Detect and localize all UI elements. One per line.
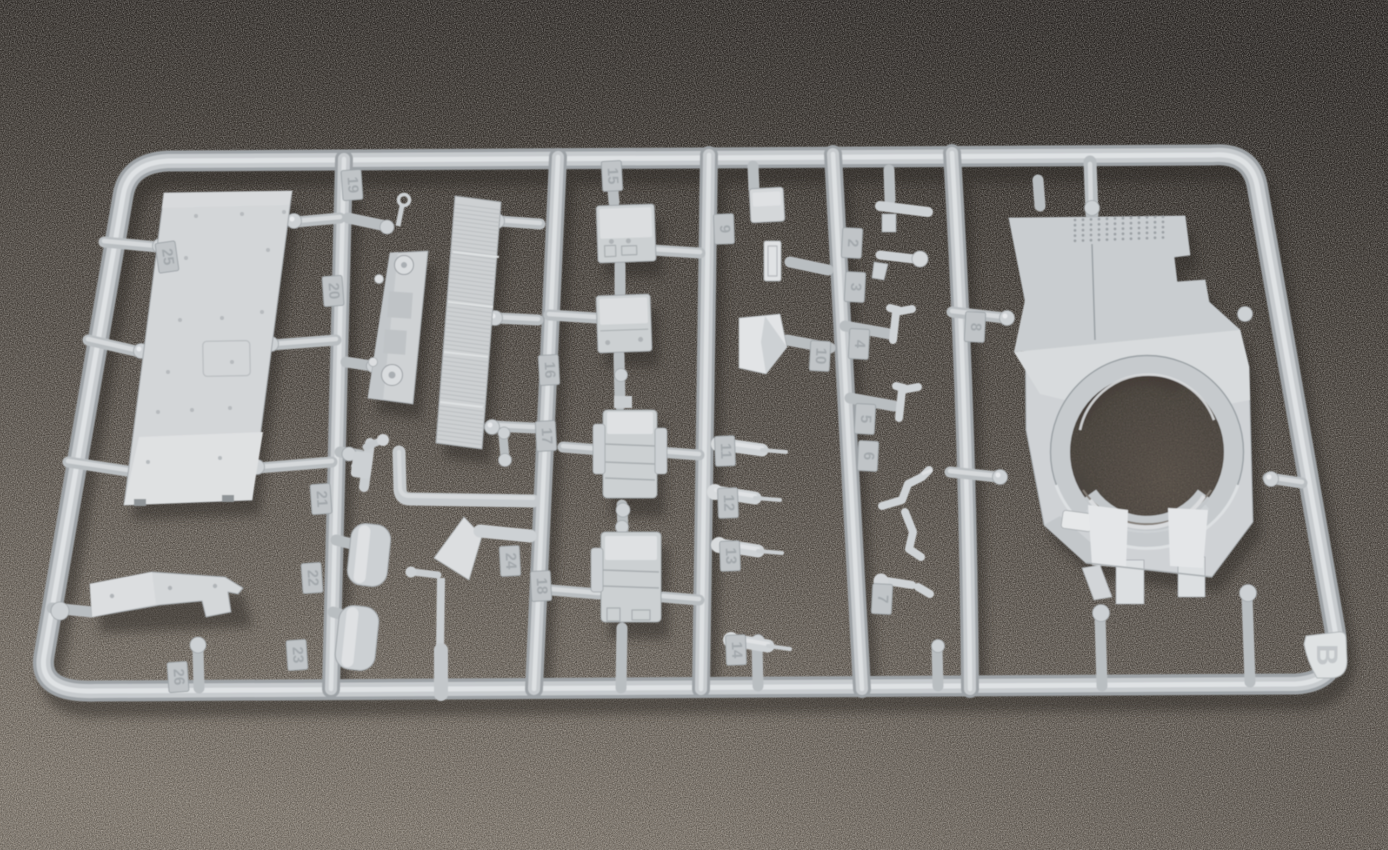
svg-text:16: 16: [541, 361, 559, 379]
svg-text:2: 2: [844, 238, 861, 247]
svg-text:5: 5: [857, 414, 874, 423]
svg-text:19: 19: [343, 176, 361, 194]
svg-text:15: 15: [604, 167, 622, 185]
svg-text:14: 14: [728, 641, 746, 659]
svg-text:22: 22: [303, 569, 321, 587]
svg-text:24: 24: [502, 552, 520, 570]
svg-text:6: 6: [860, 451, 877, 460]
svg-text:3: 3: [847, 282, 864, 291]
svg-text:9: 9: [716, 225, 733, 234]
svg-text:B: B: [1310, 644, 1343, 666]
svg-text:11: 11: [717, 443, 735, 459]
svg-text:26: 26: [169, 668, 187, 686]
svg-text:10: 10: [812, 347, 830, 365]
svg-text:13: 13: [722, 547, 740, 564]
svg-text:7: 7: [874, 594, 891, 603]
svg-text:20: 20: [324, 282, 342, 300]
svg-text:25: 25: [158, 247, 177, 266]
svg-text:4: 4: [851, 339, 868, 349]
svg-text:12: 12: [720, 494, 738, 511]
svg-text:18: 18: [533, 577, 551, 595]
svg-text:17: 17: [538, 427, 556, 445]
svg-text:21: 21: [312, 490, 330, 508]
svg-text:23: 23: [288, 646, 306, 664]
svg-text:8: 8: [967, 322, 984, 331]
